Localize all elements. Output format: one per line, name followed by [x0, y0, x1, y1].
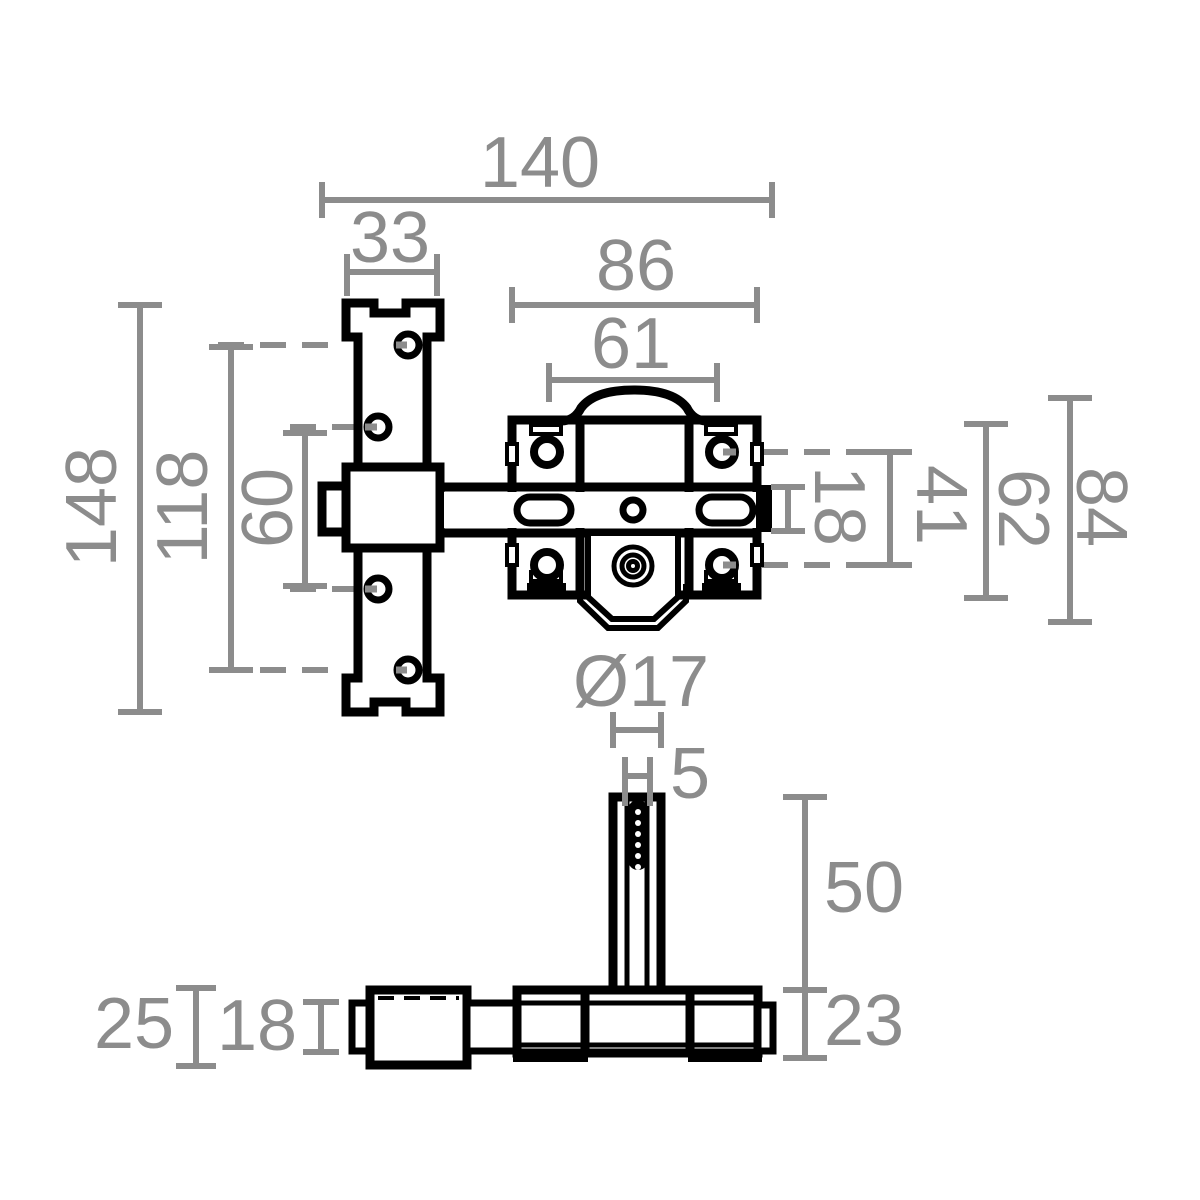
right-wing-edge-notch-bottom	[752, 545, 762, 565]
dim-label-62: 62	[983, 469, 1063, 549]
bolt-slot-right	[699, 497, 753, 523]
dim-hole-row-spacing: 41	[868, 452, 981, 565]
bolt-bar-side	[467, 1003, 517, 1051]
dim-keeper-depth: 25	[94, 984, 216, 1066]
bolt-slot-left	[517, 497, 571, 523]
dim-label-60: 60	[228, 468, 308, 548]
dim-label-148: 148	[52, 447, 132, 567]
dim-overall-height: 84	[1048, 398, 1141, 622]
dim-rod-diameter: Ø17	[573, 642, 709, 748]
rod-slot-dot	[635, 831, 641, 837]
drawing-canvas: 140 33 86 61 148	[0, 0, 1200, 1200]
rod-slot-dot	[635, 864, 641, 870]
left-wing-edge-notch-bottom	[507, 545, 517, 565]
rod-slot-dot	[635, 842, 641, 848]
cylinder-pin	[629, 562, 638, 571]
dim-label-84: 84	[1061, 467, 1141, 547]
body-hole-top-left	[534, 439, 560, 465]
keeper-side-box	[370, 990, 467, 1065]
rod-slot-dot	[635, 820, 641, 826]
rod-slot-dot	[635, 853, 641, 859]
body-side-end-tab	[758, 1005, 773, 1051]
dim-bolt-thickness: 18	[771, 466, 879, 546]
dim-keeper-width: 33	[347, 198, 437, 296]
rod-slot-dot	[635, 809, 641, 815]
right-wing-edge-notch-top	[752, 444, 762, 464]
dim-label-86: 86	[596, 226, 676, 306]
left-wing-edge-notch-top	[507, 444, 517, 464]
right-wing-top-slot	[706, 425, 736, 434]
dim-rod-length-and-body-depth: 50 23	[783, 797, 904, 1061]
body-side-flange-left	[513, 1050, 588, 1062]
dim-label-140: 140	[480, 123, 600, 203]
right-wing-bottom-bar	[702, 583, 741, 593]
dim-bar-depth: 18	[217, 986, 339, 1066]
bolt-end-cap	[756, 485, 772, 532]
left-wing-top-slot	[531, 425, 561, 434]
dim-label-61: 61	[591, 304, 671, 384]
dim-label-50: 50	[824, 848, 904, 928]
dim-label-33: 33	[350, 198, 430, 278]
front-view	[352, 797, 773, 1065]
left-wing-bottom-bar	[527, 583, 566, 593]
keeper-plate	[346, 303, 440, 712]
dim-label-18-right: 18	[799, 466, 879, 546]
body-side-flange-right	[688, 1050, 762, 1062]
body-hole-bottom-left	[534, 552, 560, 578]
dim-label-d17: Ø17	[573, 642, 709, 722]
dim-label-23: 23	[824, 981, 904, 1061]
dim-label-18-bottom: 18	[217, 986, 297, 1066]
dim-label-118: 118	[143, 450, 223, 565]
technical-drawing: 140 33 86 61 148	[0, 0, 1200, 1200]
dim-inner-hole-spacing: 60	[228, 433, 327, 586]
dim-label-41: 41	[901, 465, 981, 545]
dim-label-25: 25	[94, 984, 174, 1064]
dim-label-5: 5	[670, 734, 710, 814]
bolt-center-hole	[623, 500, 643, 520]
